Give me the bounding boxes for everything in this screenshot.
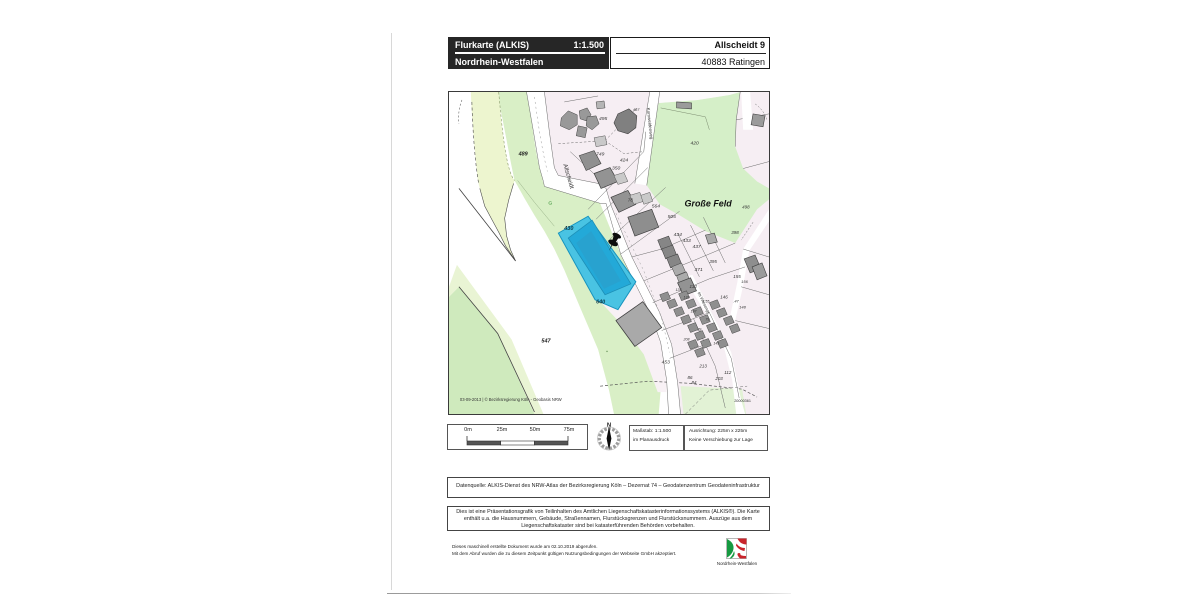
- svg-text:437: 437: [692, 244, 701, 250]
- svg-text:495: 495: [599, 116, 608, 122]
- svg-text:424: 424: [620, 158, 629, 164]
- svg-text:749: 749: [596, 152, 605, 158]
- svg-text:498: 498: [742, 204, 750, 209]
- svg-text:395: 395: [709, 259, 717, 264]
- svg-text:489: 489: [518, 152, 529, 158]
- svg-text:430: 430: [563, 226, 573, 232]
- svg-text:203: 203: [714, 376, 723, 381]
- svg-text:112: 112: [724, 370, 732, 375]
- svg-text:133: 133: [684, 296, 690, 300]
- svg-text:564: 564: [652, 203, 661, 209]
- svg-text:487: 487: [633, 107, 640, 112]
- svg-text:208: 208: [683, 337, 690, 341]
- svg-text:84: 84: [691, 380, 696, 385]
- svg-text:146: 146: [720, 295, 728, 300]
- svg-text:155: 155: [733, 274, 741, 279]
- svg-text:433: 433: [683, 238, 692, 244]
- svg-text:132: 132: [689, 284, 697, 289]
- svg-text:20000361: 20000361: [734, 399, 751, 403]
- svg-text:134: 134: [676, 288, 682, 292]
- svg-text:453: 453: [662, 359, 671, 365]
- svg-text:Große Feld: Große Feld: [685, 198, 733, 208]
- svg-text:29: 29: [696, 328, 701, 332]
- svg-text:640: 640: [596, 300, 605, 306]
- svg-text:197: 197: [690, 310, 697, 314]
- svg-text:213: 213: [698, 363, 707, 368]
- svg-text:156: 156: [741, 279, 748, 284]
- svg-text:79: 79: [705, 318, 709, 322]
- svg-text:398: 398: [731, 230, 739, 235]
- svg-text:420: 420: [690, 141, 699, 147]
- svg-text:78: 78: [628, 197, 633, 202]
- svg-text:434: 434: [674, 232, 683, 238]
- svg-text:145: 145: [713, 341, 719, 345]
- svg-text:.47: .47: [733, 299, 739, 304]
- svg-text:03-09-2013 | © Bezirksregierun: 03-09-2013 | © Bezirksregierung Köln - G…: [460, 397, 562, 402]
- svg-text:371: 371: [694, 267, 703, 273]
- svg-text:505: 505: [668, 214, 677, 220]
- svg-text:547: 547: [541, 338, 551, 344]
- svg-text:148: 148: [739, 305, 746, 310]
- svg-text:350: 350: [612, 166, 621, 172]
- svg-text:G: G: [548, 200, 552, 206]
